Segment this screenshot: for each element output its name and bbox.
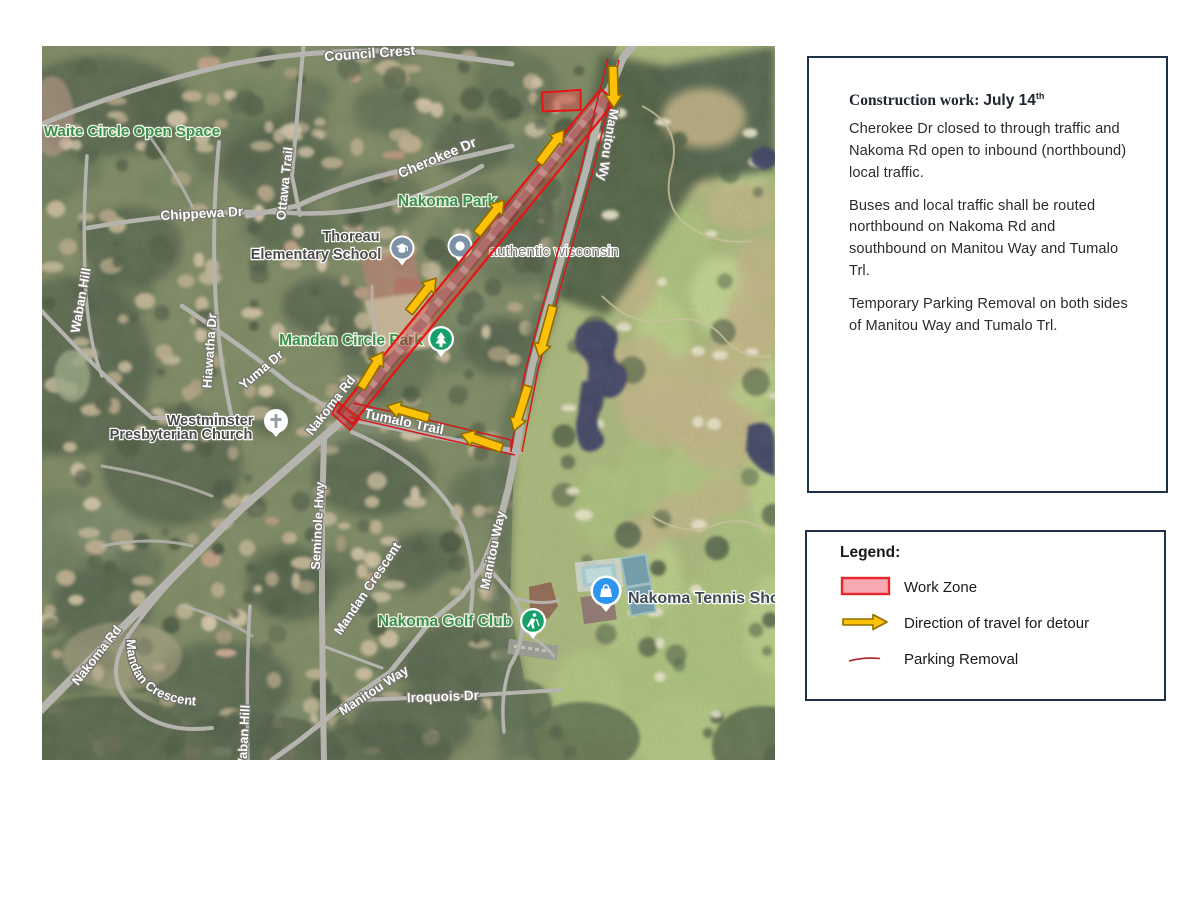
svg-text:Thoreau: Thoreau [322, 229, 379, 245]
svg-text:Parking Removal: Parking Removal [904, 651, 1018, 668]
svg-text:Nakoma Park: Nakoma Park [398, 193, 497, 210]
svg-text:Presbyterian Church: Presbyterian Church [110, 427, 253, 443]
svg-text:Elementary School: Elementary School [251, 247, 382, 263]
svg-text:Iroquois Dr: Iroquois Dr [407, 688, 480, 706]
svg-text:Nakoma Golf Club: Nakoma Golf Club [378, 613, 512, 630]
svg-text:authentic wisconsin: authentic wisconsin [489, 243, 619, 260]
svg-text:Waban Hill: Waban Hill [234, 704, 252, 760]
svg-text:Nakoma Tennis Sho: Nakoma Tennis Sho [628, 590, 775, 607]
svg-text:Waite Circle Open Space: Waite Circle Open Space [44, 123, 220, 140]
svg-text:Work Zone: Work Zone [904, 579, 977, 596]
svg-text:Direction of travel for detour: Direction of travel for detour [904, 615, 1089, 632]
